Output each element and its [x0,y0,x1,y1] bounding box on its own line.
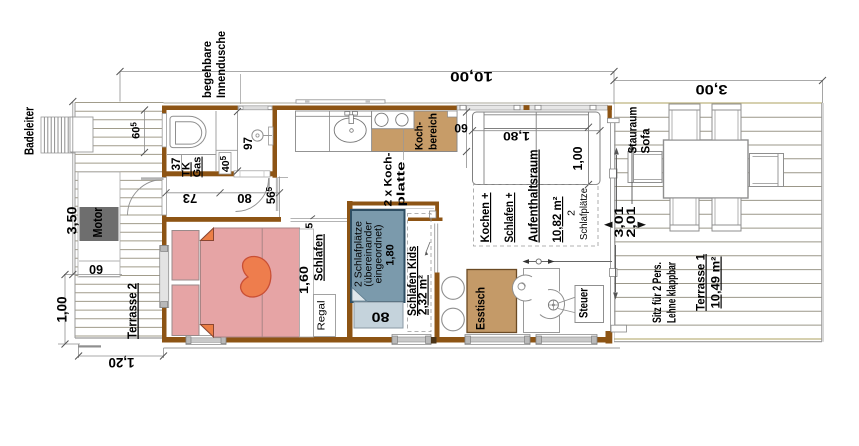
svg-text:Esstisch: Esstisch [474,287,488,330]
svg-text:2,32 m²: 2,32 m² [418,275,430,315]
svg-text:bereich: bereich [428,113,440,150]
svg-text:2: 2 [566,210,578,216]
svg-text:Gas: Gas [192,157,204,178]
svg-text:Badeleiter: Badeleiter [23,107,37,155]
svg-text:2,01: 2,01 [626,206,638,238]
svg-text:Terrasse 2: Terrasse 2 [126,283,140,339]
svg-text:1,60: 1,60 [299,266,311,294]
svg-text:Schlafen +: Schlafen + [504,192,516,242]
svg-text:60: 60 [454,121,468,135]
svg-text:Koch-: Koch- [414,122,426,150]
svg-text:97: 97 [243,137,255,150]
svg-text:Terrasse 1: Terrasse 1 [694,254,708,311]
svg-text:3,50: 3,50 [64,206,80,234]
svg-text:Lehne klappbar: Lehne klappbar [665,262,679,323]
svg-text:Steuer: Steuer [579,288,591,318]
svg-text:eingeordnet): eingeordnet) [373,225,385,284]
svg-text:1,20: 1,20 [108,355,134,371]
svg-text:Kochen +: Kochen + [480,192,492,242]
svg-text:73: 73 [183,191,197,206]
svg-text:Sofa: Sofa [639,128,653,153]
svg-text:3,01: 3,01 [614,206,626,238]
svg-text:Schlafen: Schlafen [312,234,326,281]
svg-text:1,80: 1,80 [503,129,530,143]
svg-text:605: 605 [130,122,143,139]
svg-text:Sitz für 2 Pers.: Sitz für 2 Pers. [650,262,664,323]
svg-text:Motor: Motor [90,208,105,238]
svg-text:Regal: Regal [316,301,328,331]
svg-text:1,00: 1,00 [54,296,70,322]
svg-text:begehbare: begehbare [202,41,214,98]
svg-text:1,80: 1,80 [385,244,397,265]
svg-text:60: 60 [89,262,103,276]
svg-text:10,82 m²: 10,82 m² [552,196,564,242]
svg-text:platte: platte [396,162,408,207]
svg-text:80: 80 [237,191,251,206]
svg-text:3,00: 3,00 [695,82,727,98]
svg-text:Stauraum: Stauraum [626,107,640,154]
svg-text:2 x Koch-: 2 x Koch- [383,152,395,206]
svg-text:10,00: 10,00 [450,69,493,85]
svg-text:Aufenthaltsraum: Aufenthaltsraum [527,150,541,243]
svg-text:Schlafplätze: Schlafplätze [578,188,590,240]
svg-text:Innendusche: Innendusche [216,31,228,98]
svg-text:80: 80 [372,310,390,325]
svg-text:5: 5 [304,223,316,229]
svg-text:10,49 m²: 10,49 m² [709,256,723,308]
svg-text:1,00: 1,00 [571,146,585,170]
